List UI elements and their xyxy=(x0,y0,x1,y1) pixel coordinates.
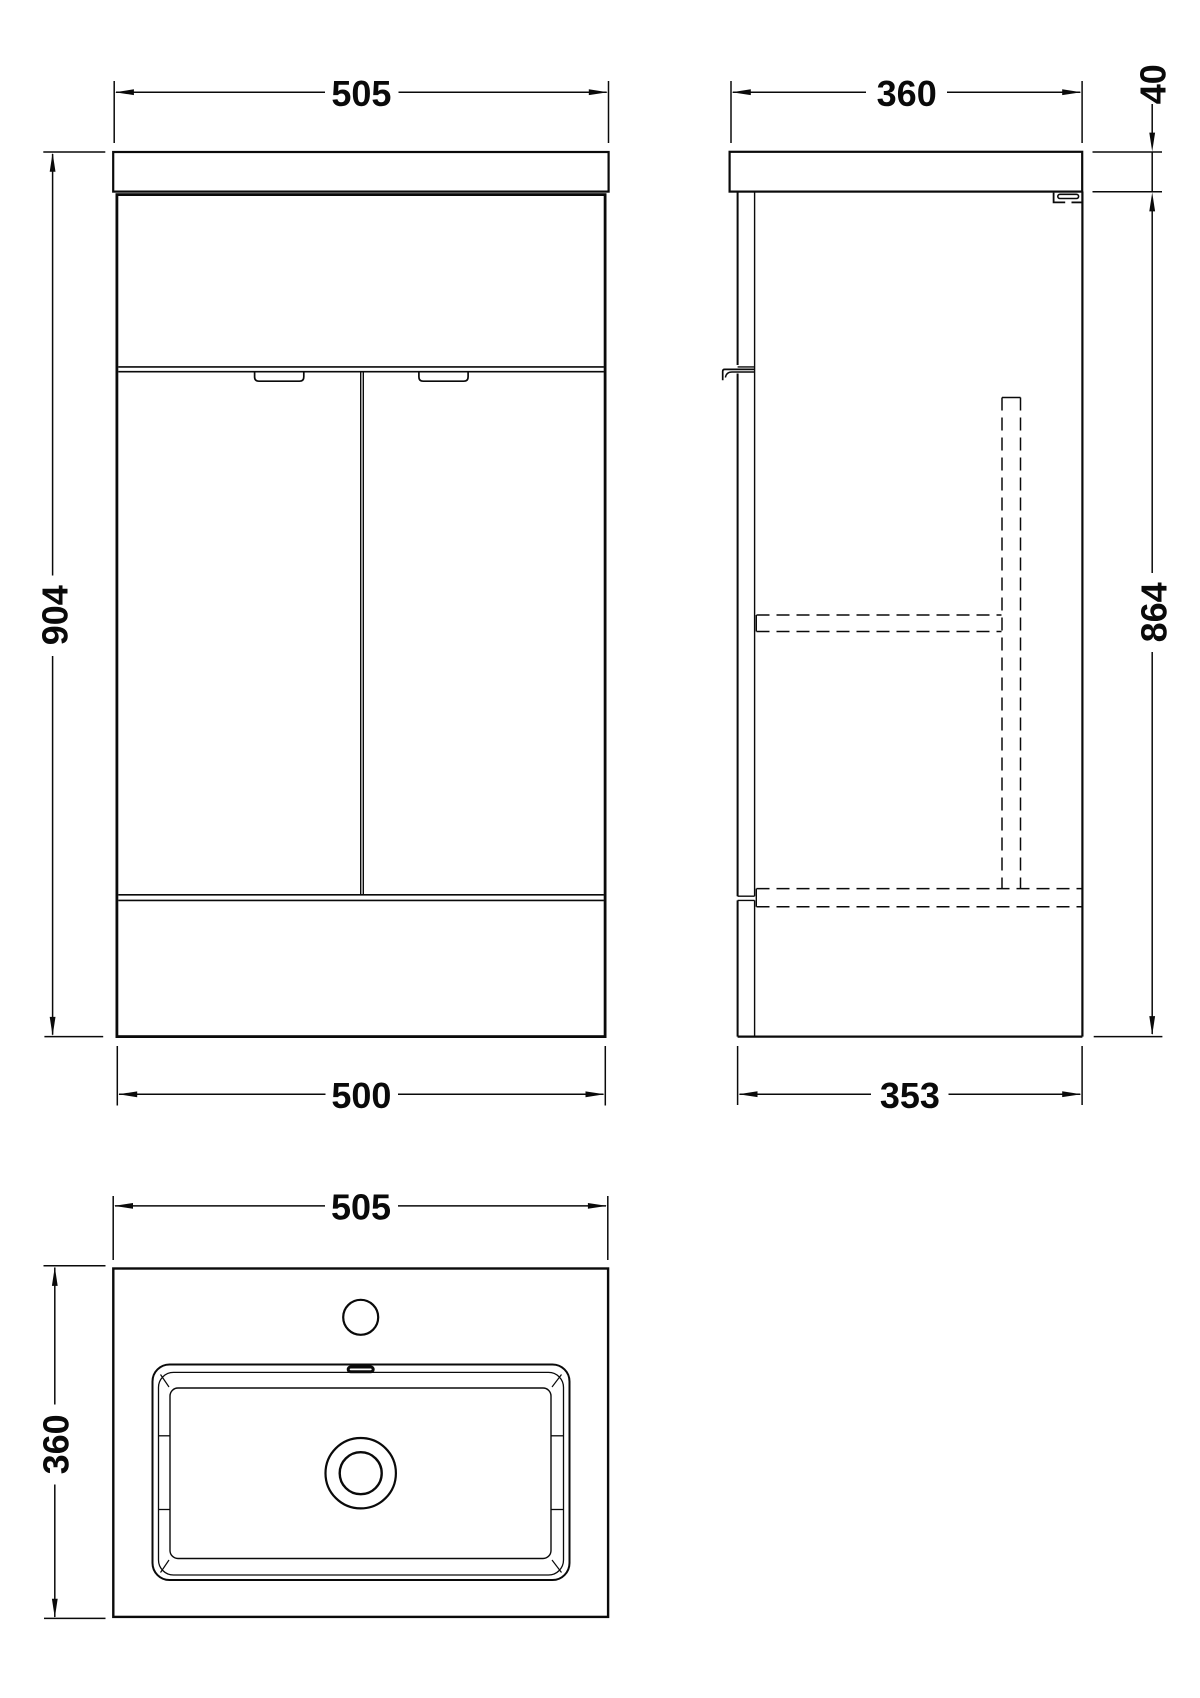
svg-text:904: 904 xyxy=(34,585,75,645)
svg-text:40: 40 xyxy=(1133,64,1174,104)
svg-text:360: 360 xyxy=(35,1414,76,1474)
svg-text:353: 353 xyxy=(880,1075,940,1116)
svg-text:505: 505 xyxy=(331,73,391,114)
svg-text:864: 864 xyxy=(1133,582,1174,642)
svg-text:505: 505 xyxy=(331,1187,391,1228)
svg-text:500: 500 xyxy=(331,1075,391,1116)
svg-text:360: 360 xyxy=(877,73,937,114)
